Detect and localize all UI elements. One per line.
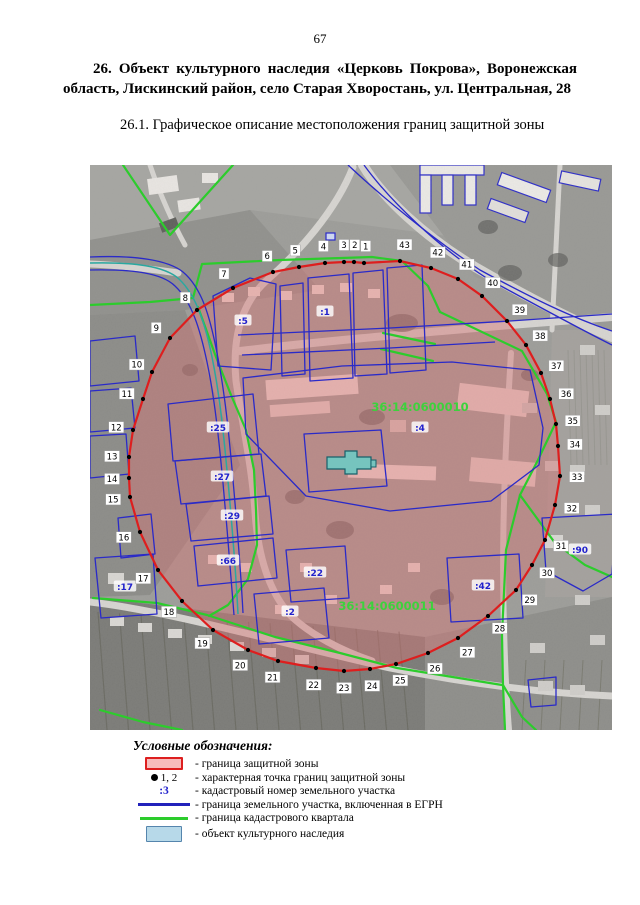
boundary-point-label: 20	[235, 661, 246, 671]
boundary-point-label: 36	[561, 390, 572, 400]
boundary-point-label: 41	[461, 261, 472, 271]
boundary-point-label: 4	[321, 242, 326, 252]
boundary-point-label: 39	[514, 306, 525, 316]
boundary-point-label: 15	[108, 496, 119, 506]
boundary-point-label: 31	[556, 542, 567, 552]
boundary-point-label: 42	[432, 249, 443, 259]
protection-zone-map: 36:14:060001036:14:0600011:5:1:25:27:29:…	[90, 165, 612, 730]
boundary-point-label: 8	[183, 294, 188, 304]
boundary-point-label: 16	[118, 533, 129, 543]
legend-label: - характерная точка границ защитной зоны	[195, 772, 405, 784]
boundary-point-label: 21	[267, 673, 278, 683]
boundary-point-label: 17	[138, 574, 149, 584]
quarter-boundary-line-icon	[140, 817, 188, 820]
legend-item-cadastral-number: :3 - кадастровый номер земельного участк…	[133, 785, 553, 797]
boundary-point-label: 13	[107, 452, 118, 462]
parcel-number-label: :1	[320, 308, 330, 318]
legend-item-parcel-line: - граница земельного участка, включенная…	[133, 799, 553, 811]
boundary-point-label: 43	[399, 241, 410, 251]
boundary-point-label: 27	[462, 648, 473, 658]
parcel-number-label: :29	[224, 512, 240, 522]
point-numbers: 1, 2	[161, 772, 178, 784]
legend-label: - объект культурного наследия	[195, 828, 344, 840]
parcel-number-label: :17	[117, 583, 133, 593]
boundary-point-label: 29	[524, 596, 535, 606]
section-title: 26. Объект культурного наследия «Церковь…	[63, 59, 577, 99]
boundary-point-label: 9	[154, 324, 159, 334]
boundary-point-label: 28	[494, 624, 505, 634]
boundary-point-label: 30	[542, 569, 553, 579]
boundary-point-label: 10	[131, 361, 142, 371]
legend-item-zone: - граница защитной зоны	[133, 757, 553, 770]
boundary-point-label: 7	[221, 270, 226, 280]
boundary-point-label: 19	[197, 639, 208, 649]
boundary-point-label: 11	[121, 390, 132, 400]
quarter-number-label: 36:14:0600011	[338, 599, 435, 613]
boundary-point-label: 40	[487, 279, 498, 289]
boundary-point-label: 6	[264, 252, 269, 262]
section-subtitle: 26.1. Графическое описание местоположени…	[63, 117, 577, 134]
boundary-point-label: 12	[111, 423, 122, 433]
boundary-point-label: 18	[164, 608, 175, 618]
boundary-point-label: 26	[430, 665, 441, 675]
quarter-number-label: 36:14:0600010	[371, 400, 468, 414]
legend-label: - кадастровый номер земельного участка	[195, 785, 395, 797]
boundary-point-label: 24	[367, 682, 378, 692]
parcel-number-label: :4	[415, 424, 425, 434]
legend-label: - граница земельного участка, включенная…	[195, 799, 443, 811]
boundary-point-label: 37	[551, 362, 562, 372]
boundary-point-label: 32	[566, 504, 577, 514]
parcel-number-label: :27	[214, 473, 230, 483]
document-page: 67 26. Объект культурного наследия «Церк…	[0, 0, 640, 905]
boundary-point-label: 35	[567, 417, 578, 427]
legend-item-quarter-line: - граница кадастрового квартала	[133, 812, 553, 824]
boundary-point-label: 3	[341, 241, 346, 251]
boundary-point-label: 23	[339, 684, 350, 694]
legend-label: - граница кадастрового квартала	[195, 812, 354, 824]
legend-title: Условные обозначения:	[133, 738, 553, 754]
parcel-number-label: :22	[307, 569, 323, 579]
boundary-point-label: 14	[107, 475, 118, 485]
legend-item-point: 1, 2 - характерная точка границ защитной…	[133, 772, 553, 784]
zone-boundary-swatch	[145, 757, 183, 770]
parcel-number-label: :90	[572, 546, 588, 556]
boundary-point-label: 1	[363, 242, 368, 252]
boundary-point-label: 38	[535, 332, 546, 342]
parcel-number-label: :2	[285, 608, 295, 618]
legend-label: - граница защитной зоны	[195, 758, 318, 770]
parcel-number-label: :42	[475, 582, 491, 592]
page-number: 67	[0, 31, 640, 47]
map-legend: Условные обозначения: - граница защитной…	[133, 738, 553, 843]
map-svg: 36:14:060001036:14:0600011:5:1:25:27:29:…	[90, 165, 612, 730]
parcel-number-label: :5	[238, 317, 248, 327]
parcel-number-label: :66	[220, 557, 236, 567]
boundary-point-icon	[151, 774, 158, 781]
boundary-point-label: 25	[395, 677, 406, 687]
boundary-point-label: 5	[293, 247, 298, 257]
parcel-number-label: :25	[210, 424, 226, 434]
parcel-boundary-line-icon	[138, 803, 190, 806]
boundary-point-label: 2	[352, 241, 357, 251]
boundary-point-label: 34	[570, 441, 581, 451]
boundary-point-label: 33	[572, 473, 583, 483]
legend-item-heritage: - объект культурного наследия	[133, 826, 553, 842]
heritage-object-swatch	[146, 826, 182, 842]
boundary-point-label: 22	[308, 681, 319, 691]
cadastral-number-sample: :3	[159, 785, 169, 797]
